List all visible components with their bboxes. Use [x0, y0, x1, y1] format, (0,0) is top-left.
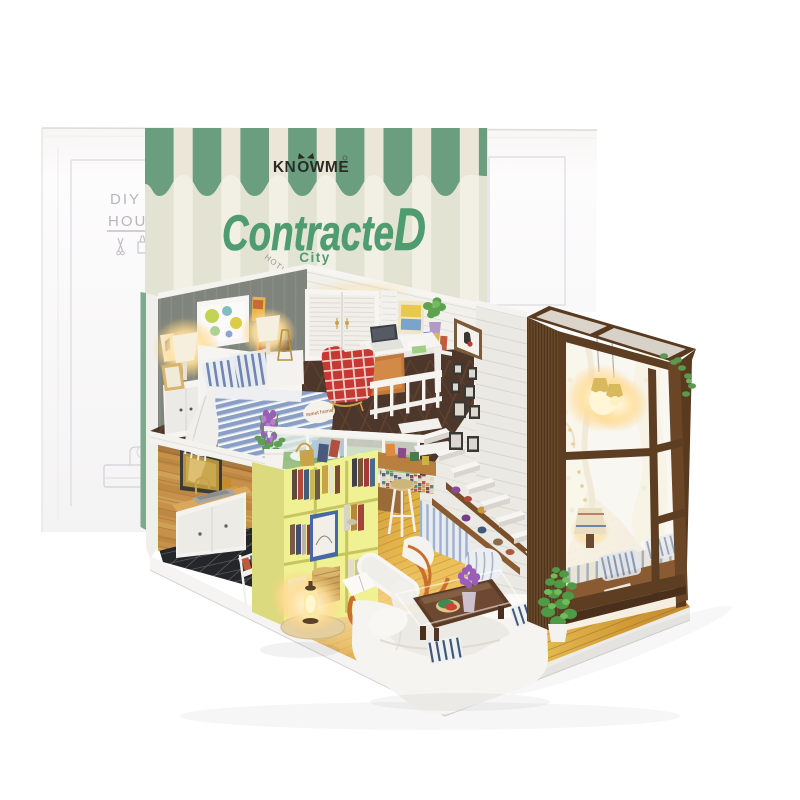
svg-text:DIY: DIY	[110, 191, 141, 208]
svg-text:KNOWME: KNOWME	[273, 159, 349, 176]
svg-text:City: City	[299, 250, 331, 265]
